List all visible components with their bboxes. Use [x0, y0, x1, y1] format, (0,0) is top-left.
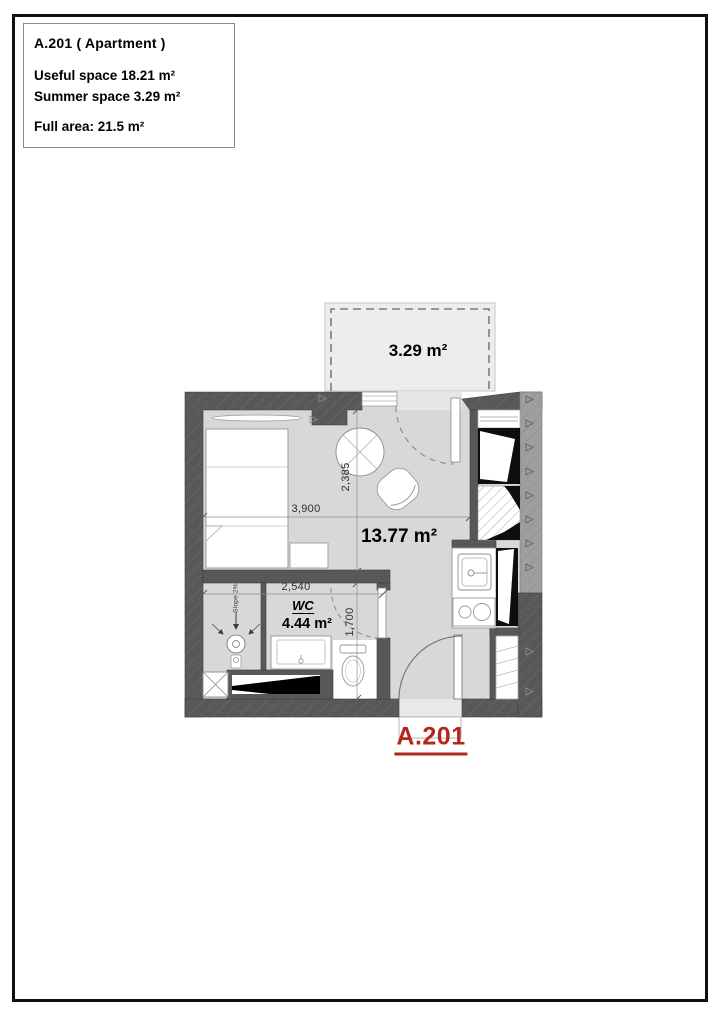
dim-living-width: 3,900 [291, 503, 320, 515]
bed-bench [290, 543, 328, 568]
dim-wc-width: 2,540 [281, 581, 310, 593]
wc-area-label: 4.44 m² [282, 616, 332, 632]
balcony-area-label: 3.29 m² [389, 341, 448, 361]
apartment-id-label: A.201 [394, 723, 467, 756]
wardrobe [478, 410, 520, 540]
balcony-window [362, 392, 397, 406]
dim-wc-depth: 1,700 [344, 607, 356, 636]
kitchen-sink [458, 554, 491, 590]
stairs-area [496, 636, 518, 699]
wc-label: WC [292, 598, 314, 614]
cooktop [453, 598, 495, 626]
floor-plan [0, 0, 724, 1024]
living-area-label: 13.77 m² [361, 526, 437, 548]
wall-shelf [212, 415, 302, 421]
shaft-box [203, 672, 228, 697]
toilet [340, 645, 366, 686]
tall-cabinet [496, 548, 518, 626]
slope-label: Slope 2% [233, 583, 240, 612]
bed [206, 429, 288, 568]
drawing-sheet: A.201 ( Apartment ) Useful space 18.21 m… [0, 0, 724, 1024]
washbasin [271, 636, 331, 669]
cabinet-front [232, 675, 320, 694]
dim-living-depth: 2,385 [340, 462, 352, 491]
